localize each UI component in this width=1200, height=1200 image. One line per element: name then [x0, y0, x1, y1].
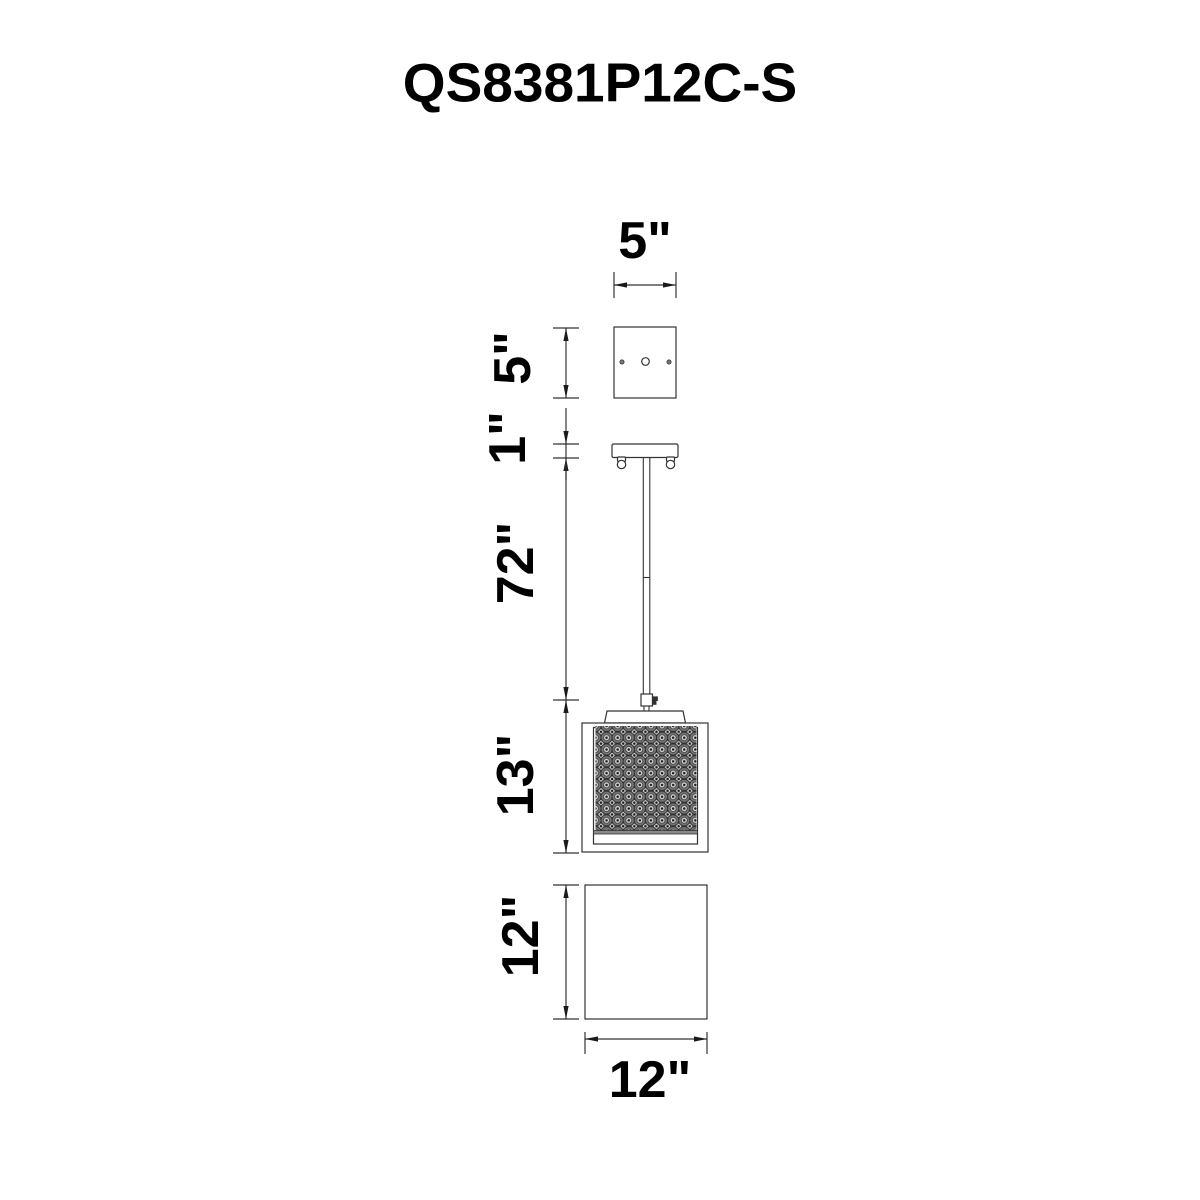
dim-rod-length-arrows [563, 687, 568, 700]
dim-label-rod-length: 72" [490, 522, 542, 605]
dim-label-canopy-width: 5" [618, 215, 672, 267]
line-drawing [0, 0, 1200, 1200]
crystal-panel [594, 726, 698, 834]
dim-label-shade-width: 12" [609, 1054, 692, 1106]
canopy-side-view [612, 444, 678, 469]
pendant-dimension-diagram: QS8381P12C-S 5" 5" 1" 72" 13" 12" 12" [0, 0, 1200, 1200]
dim-label-frame-height: 13" [490, 734, 542, 817]
hanging-rod [643, 458, 650, 712]
shade-top-plate [605, 711, 686, 723]
dim-label-shade-height: 12" [495, 895, 547, 978]
dim-label-canopy-depth: 5" [487, 331, 539, 385]
shade-bottom-view [585, 885, 707, 1019]
dim-shade-height-lines [553, 885, 579, 1019]
canopy-top-view [614, 327, 676, 398]
model-number-title: QS8381P12C-S [403, 56, 797, 111]
dim-frame-height-lines [553, 700, 579, 853]
crystal-panel-bottom-rail [594, 831, 698, 835]
dim-label-canopy-thickness: 1" [482, 411, 534, 465]
dim-rod-length-lines [553, 458, 579, 700]
rod-coupler [641, 694, 657, 706]
